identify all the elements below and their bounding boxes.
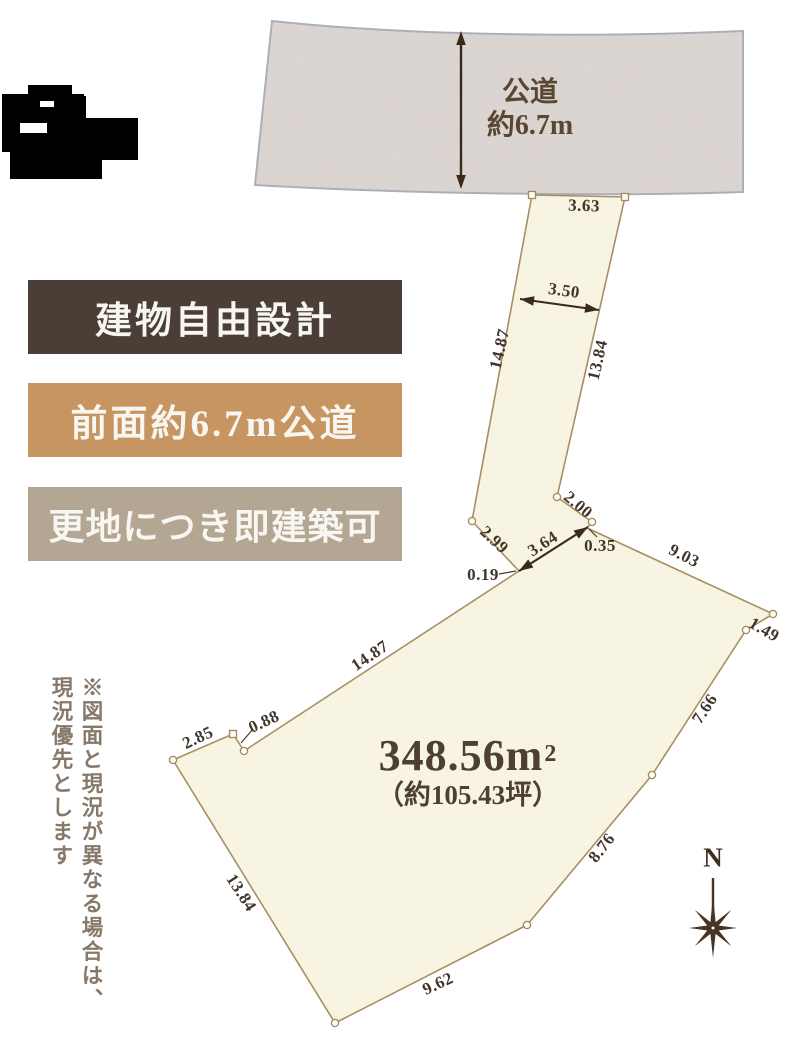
area-superscript: 2 (544, 741, 557, 767)
road-label-line2: 約6.7m (455, 109, 605, 142)
redaction-blob (2, 85, 138, 179)
badge-ready-to-build: 更地につき即建築可 (28, 487, 402, 561)
dim-label-0.19: 0.19 (467, 565, 499, 585)
area-tsubo: （約105.43坪） (318, 779, 618, 811)
dim-label-3.50: 3.50 (547, 279, 581, 303)
road-label: 公道 約6.7m (455, 76, 605, 142)
dim-label-0.35: 0.35 (584, 536, 616, 556)
road-label-line1: 公道 (455, 76, 605, 109)
compass-icon (689, 878, 737, 958)
disclaimer-line1: ※図面と現況が異なる場合は、 (76, 676, 106, 1028)
disclaimer-note: ※図面と現況が異なる場合は、 現況優先とします (46, 676, 106, 1028)
land-plot-flyer: 公道 約6.7m 建物自由設計 前面約6.7m公道 更地につき即建築可 3.63… (0, 0, 800, 1048)
disclaimer-line2: 現況優先とします (46, 676, 76, 1028)
badge-free-design: 建物自由設計 (28, 280, 402, 354)
compass-north-label: N (703, 843, 723, 874)
area-square-meters: 348.56m2 (318, 731, 618, 779)
area-value: 348.56m (379, 731, 544, 780)
dim-label-3.63: 3.63 (568, 195, 600, 216)
badge-front-road: 前面約6.7m公道 (28, 383, 402, 457)
area-label: 348.56m2 （約105.43坪） (318, 731, 618, 811)
